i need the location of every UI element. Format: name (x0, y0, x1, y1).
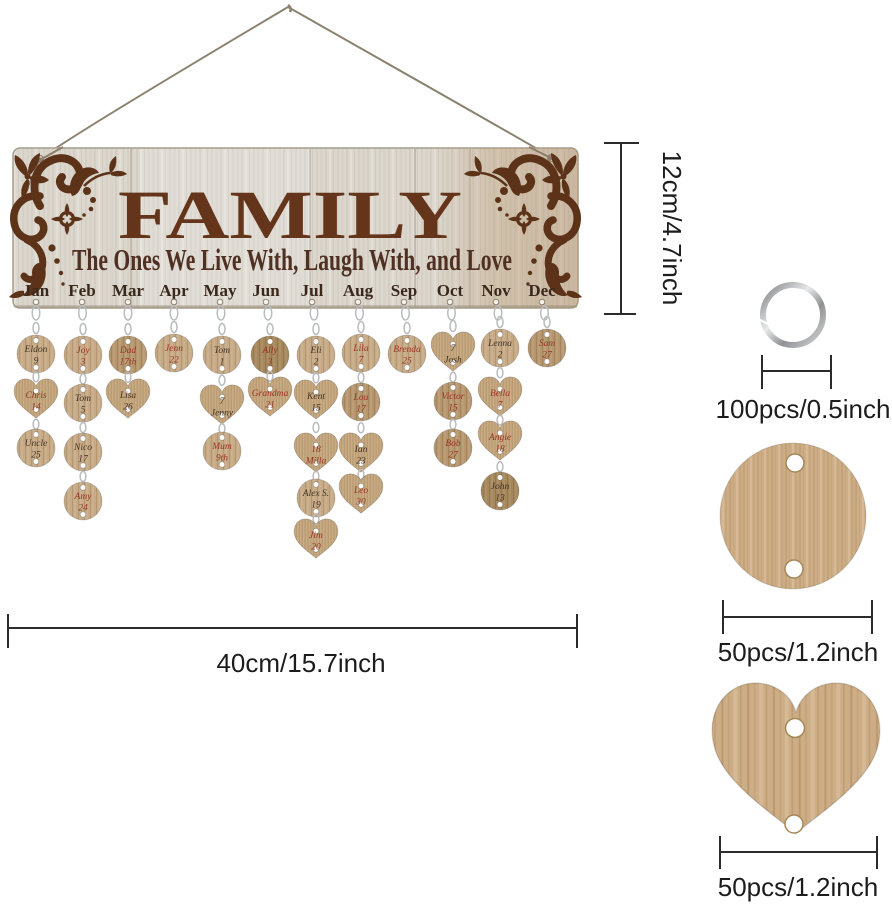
svg-text:27: 27 (448, 451, 459, 461)
svg-text:May: May (203, 281, 237, 300)
svg-text:24: 24 (78, 504, 88, 514)
svg-text:Kent: Kent (306, 392, 325, 402)
svg-text:Josh: Josh (444, 356, 462, 366)
svg-text:Ian: Ian (354, 445, 368, 455)
svg-text:John: John (491, 482, 510, 492)
svg-text:14: 14 (31, 403, 41, 413)
svg-text:3: 3 (80, 358, 86, 368)
svg-text:50pcs/1.2inch: 50pcs/1.2inch (718, 872, 878, 902)
svg-text:Lou: Lou (353, 393, 369, 403)
svg-text:Bob: Bob (445, 439, 461, 449)
svg-text:2: 2 (498, 351, 503, 361)
svg-text:5: 5 (81, 406, 86, 416)
svg-text:9: 9 (34, 357, 39, 367)
svg-text:Chris: Chris (25, 391, 46, 401)
svg-text:Jim: Jim (309, 531, 323, 541)
svg-text:3: 3 (267, 358, 273, 368)
svg-text:100pcs/0.5inch: 100pcs/0.5inch (716, 394, 891, 424)
svg-text:Mar: Mar (112, 281, 145, 300)
svg-text:17: 17 (356, 405, 367, 415)
svg-text:Mum: Mum (211, 442, 232, 452)
svg-text:Eli: Eli (309, 346, 321, 356)
svg-text:15: 15 (311, 404, 321, 414)
svg-text:Angie: Angie (488, 433, 511, 443)
svg-text:21: 21 (265, 401, 275, 411)
svg-text:22: 22 (169, 356, 179, 366)
svg-text:Dad: Dad (119, 346, 137, 356)
svg-text:Jul: Jul (301, 281, 324, 300)
svg-text:Lenna: Lenna (487, 339, 512, 349)
svg-text:Jenn: Jenn (165, 344, 183, 354)
svg-text:2: 2 (314, 358, 319, 368)
svg-text:15: 15 (448, 404, 458, 414)
svg-text:Aug: Aug (343, 281, 374, 300)
svg-text:Jan: Jan (23, 281, 50, 300)
svg-text:13: 13 (495, 494, 505, 504)
svg-text:30: 30 (355, 498, 366, 508)
svg-text:23: 23 (356, 457, 366, 467)
svg-text:17: 17 (78, 455, 89, 465)
svg-text:Ally: Ally (261, 346, 278, 356)
svg-text:Lisa: Lisa (119, 391, 137, 401)
svg-text:The Ones We Live With, Laugh W: The Ones We Live With, Laugh With, and L… (72, 242, 512, 277)
svg-text:9th: 9th (216, 454, 228, 464)
svg-text:Tom: Tom (75, 394, 91, 404)
svg-text:Sep: Sep (391, 281, 417, 300)
svg-text:26: 26 (123, 403, 133, 413)
svg-text:12cm/4.7inch: 12cm/4.7inch (657, 151, 687, 306)
svg-text:Bella: Bella (490, 389, 510, 399)
svg-text:20: 20 (311, 543, 321, 553)
svg-text:50pcs/1.2inch: 50pcs/1.2inch (718, 637, 878, 667)
svg-text:19: 19 (311, 501, 321, 511)
svg-text:Lila: Lila (352, 344, 369, 354)
svg-text:25: 25 (31, 451, 41, 461)
svg-text:Oct: Oct (437, 281, 464, 300)
svg-text:Eldon: Eldon (24, 345, 48, 355)
svg-text:Joy: Joy (76, 346, 90, 356)
svg-text:Uncle: Uncle (25, 439, 48, 449)
svg-text:Nov: Nov (481, 281, 511, 300)
svg-text:Tom: Tom (214, 346, 230, 356)
svg-text:Apr: Apr (159, 281, 189, 300)
svg-text:27: 27 (542, 351, 553, 361)
svg-text:Alex S.: Alex S. (302, 489, 329, 499)
svg-text:Sam: Sam (539, 339, 556, 349)
svg-text:Feb: Feb (68, 281, 95, 300)
svg-text:Dec: Dec (528, 281, 556, 300)
svg-text:Victor: Victor (441, 392, 464, 402)
svg-text:Milla: Milla (305, 457, 327, 467)
svg-text:Nico: Nico (73, 443, 92, 453)
svg-text:Jun: Jun (252, 281, 280, 300)
svg-text:Grandma: Grandma (252, 389, 289, 399)
svg-text:25: 25 (402, 357, 412, 367)
svg-text:Amy: Amy (74, 492, 93, 502)
svg-text:17th: 17th (120, 358, 137, 368)
svg-text:Brenda: Brenda (393, 345, 421, 355)
svg-text:18: 18 (495, 445, 505, 455)
svg-text:1: 1 (220, 358, 225, 368)
svg-text:40cm/15.7inch: 40cm/15.7inch (216, 648, 385, 678)
svg-text:Jenny: Jenny (211, 409, 234, 419)
svg-text:18: 18 (311, 445, 321, 455)
svg-text:Leo: Leo (353, 486, 369, 496)
